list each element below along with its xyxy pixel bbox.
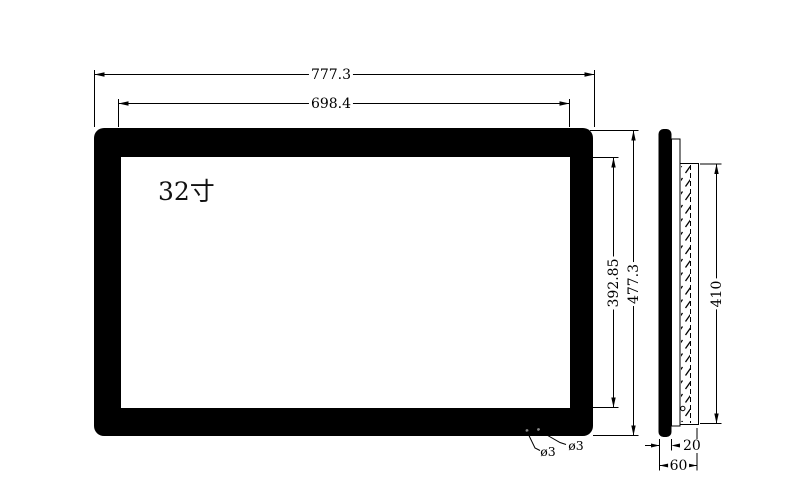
dim-inner-height: 392.85 — [607, 256, 621, 309]
dimension-drawing: 32寸 777.3 698.4 392.85 477.3 410 20 60 ø… — [0, 0, 800, 500]
front-view — [94, 128, 593, 436]
side-view — [659, 129, 699, 437]
dim-inner-width: 698.4 — [309, 97, 353, 111]
side-screw-hole — [681, 406, 685, 410]
side-front-panel — [659, 129, 672, 437]
dim-panel-thickness: 20 — [681, 439, 703, 453]
screen-size-label: 32寸 — [158, 179, 215, 204]
side-mid-frame — [672, 139, 681, 426]
side-hatch-section — [681, 166, 690, 422]
hole-callout-left: ø3 — [540, 445, 555, 458]
dim-total-depth: 60 — [668, 459, 690, 473]
drawing-canvas — [0, 0, 800, 500]
bezel-hole-left — [526, 429, 529, 432]
hole-callout-right: ø3 — [568, 439, 583, 452]
dim-outer-width: 777.3 — [309, 68, 353, 82]
dim-bracket-height: 410 — [710, 278, 724, 309]
dim-outer-height: 477.3 — [627, 261, 641, 305]
